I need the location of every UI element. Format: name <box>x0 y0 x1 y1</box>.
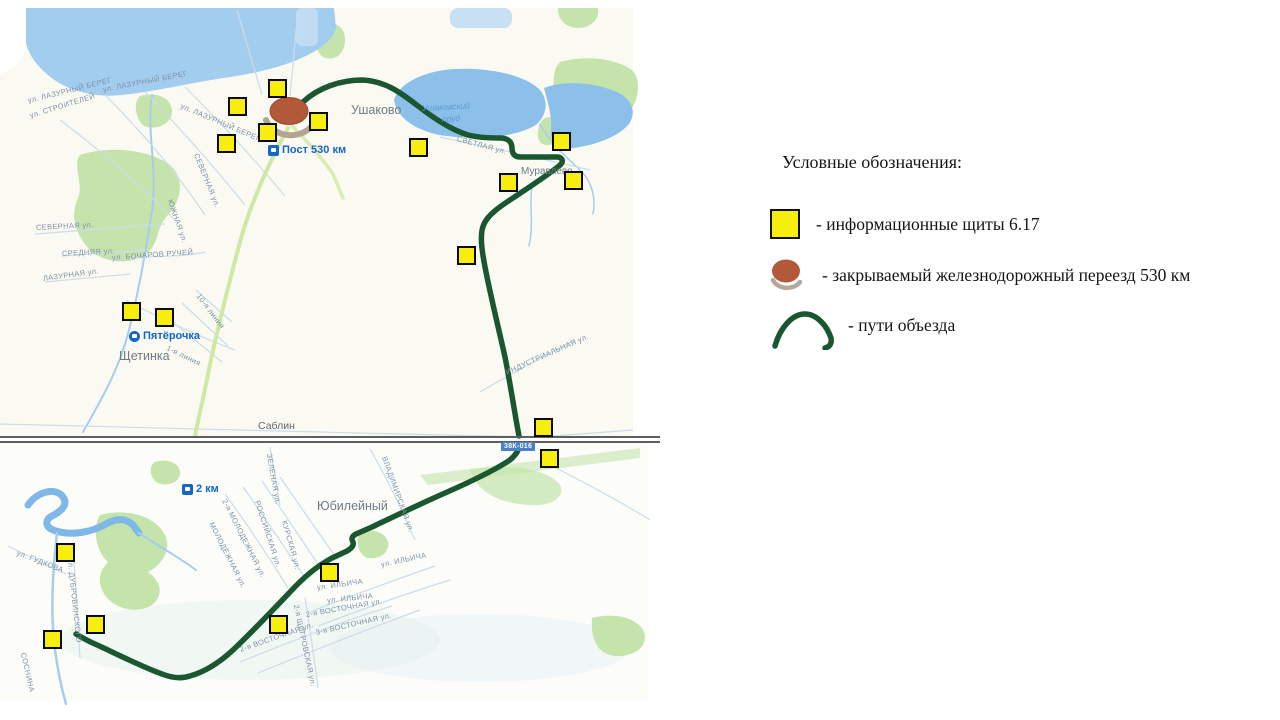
detour-route-icon <box>770 306 840 350</box>
legend-item-label: - информационные щиты 6.17 <box>816 214 1040 235</box>
legend-item-label: - пути объезда <box>848 306 955 336</box>
legend-item-label: - закрываемый железнодорожный переезд 53… <box>822 265 1190 286</box>
scanned-detour-map-page: ул. ЛАЗУРНЫЙ БЕРЕГул. ЛАЗУРНЫЙ БЕРЕГул. … <box>0 0 1280 720</box>
scan-seam <box>0 436 660 443</box>
info-board-icon <box>770 209 800 239</box>
map-canvas <box>0 0 1280 720</box>
legend-item-detour-routes: - пути объезда <box>770 306 1272 350</box>
railway-crossing-icon <box>770 258 806 292</box>
legend-item-info-boards: - информационные щиты 6.17 <box>770 209 1272 239</box>
legend-item-railway-crossing: - закрываемый железнодорожный переезд 53… <box>770 258 1272 292</box>
legend: Условные обозначения: - информационные щ… <box>770 152 1272 350</box>
legend-title: Условные обозначения: <box>782 152 1272 173</box>
